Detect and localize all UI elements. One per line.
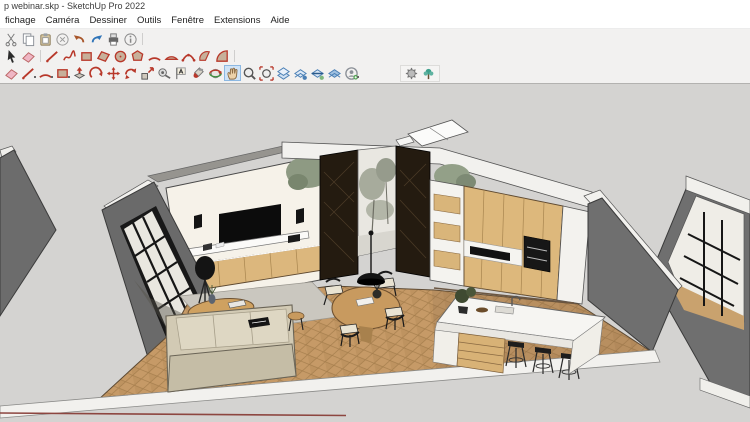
extension-a-icon: [404, 66, 419, 81]
undo-icon: [72, 32, 87, 47]
paste-tool-button[interactable]: [37, 31, 54, 47]
pan-icon: [225, 66, 240, 81]
redo-icon: [89, 32, 104, 47]
menu-item-dessiner[interactable]: Dessiner: [84, 15, 132, 26]
delete-tool-button[interactable]: [54, 31, 71, 47]
zoom-icon: [242, 66, 257, 81]
tree-mural: [358, 146, 396, 256]
toolbar-standard: [3, 31, 750, 48]
menu-item-fichage[interactable]: fichage: [0, 15, 41, 26]
dropdown-indicator[interactable]: [51, 76, 53, 78]
menu-item-camera[interactable]: Caméra: [41, 15, 85, 26]
account-icon: [344, 66, 359, 81]
print-icon: [106, 32, 121, 47]
circle-tool-button[interactable]: [112, 48, 129, 64]
3-point-arc-icon: [181, 49, 196, 64]
follow-me-icon: [89, 66, 104, 81]
rotate-icon: [123, 66, 138, 81]
polygon-tool-button[interactable]: [129, 48, 146, 64]
toolbar-main: [3, 65, 750, 82]
orbit-icon: [208, 66, 223, 81]
text-tool-button[interactable]: [173, 65, 190, 81]
rectangle-icon: [79, 49, 94, 64]
ovens: [524, 236, 550, 272]
pan-tool-button[interactable]: [224, 65, 241, 81]
scale-tool-button[interactable]: [139, 65, 156, 81]
zoom-tool-button[interactable]: [241, 65, 258, 81]
2-point-arc-icon: [164, 49, 179, 64]
toolbar-separator: [40, 50, 41, 62]
toolbar-separator: [142, 33, 143, 45]
push-pull-tool-button[interactable]: [71, 65, 88, 81]
wardrobe-left: [320, 150, 358, 280]
cut-tool-button[interactable]: [3, 31, 20, 47]
display-section-planes-tool-button[interactable]: [292, 65, 309, 81]
title-bar: p webinar.skp - SketchUp Pro 2022: [0, 0, 750, 13]
pie-filled-icon: [215, 49, 230, 64]
menu-item-fenetre[interactable]: Fenêtre: [166, 15, 209, 26]
copy-icon: [21, 32, 36, 47]
pie-filled-tool-button[interactable]: [214, 48, 231, 64]
tape-measure-icon: [157, 66, 172, 81]
sofa: [166, 305, 296, 392]
3d-viewport[interactable]: [0, 84, 750, 422]
speaker-left: [194, 214, 202, 229]
rectangle-icon: [55, 66, 70, 81]
push-pull-icon: [72, 66, 87, 81]
rotated-rectangle-icon: [96, 49, 111, 64]
display-section-planes-icon: [293, 66, 308, 81]
paint-bucket-tool-button[interactable]: [190, 65, 207, 81]
pie-icon: [198, 49, 213, 64]
section-plane-icon: [276, 66, 291, 81]
eraser-tool-button[interactable]: [3, 65, 20, 81]
menu-item-outils[interactable]: Outils: [132, 15, 166, 26]
menu-bar: fichageCaméraDessinerOutilsFenêtreExtens…: [0, 13, 750, 29]
rectangle-tool-button[interactable]: [78, 48, 95, 64]
sketchup-window: p webinar.skp - SketchUp Pro 2022 fichag…: [0, 0, 750, 422]
line-icon: [21, 66, 36, 81]
move-tool-button[interactable]: [105, 65, 122, 81]
scale-icon: [140, 66, 155, 81]
toolbar-area: [0, 29, 750, 84]
extensions-toolbar-island: [400, 65, 440, 82]
zoom-extents-tool-button[interactable]: [258, 65, 275, 81]
extension-b-tool-button[interactable]: [420, 65, 437, 81]
arc-icon: [38, 66, 53, 81]
polygon-icon: [130, 49, 145, 64]
extension-a-tool-button[interactable]: [403, 65, 420, 81]
line-icon: [45, 49, 60, 64]
orbit-tool-button[interactable]: [207, 65, 224, 81]
undo-tool-button[interactable]: [71, 31, 88, 47]
display-section-cuts-tool-button[interactable]: [309, 65, 326, 81]
eraser-tool-button[interactable]: [20, 48, 37, 64]
model-info-tool-button[interactable]: [122, 31, 139, 47]
paint-bucket-icon: [191, 66, 206, 81]
menu-item-extensions[interactable]: Extensions: [209, 15, 265, 26]
follow-me-tool-button[interactable]: [88, 65, 105, 81]
toolbar-drawing: [3, 48, 750, 65]
freehand-tool-button[interactable]: [61, 48, 78, 64]
2-point-arc-tool-button[interactable]: [163, 48, 180, 64]
zoom-extents-icon: [259, 66, 274, 81]
redo-tool-button[interactable]: [88, 31, 105, 47]
wardrobe-right: [396, 146, 430, 277]
line-tool-button[interactable]: [20, 65, 37, 81]
dining-table: [332, 287, 400, 329]
rectangle-tool-button[interactable]: [54, 65, 71, 81]
eraser-icon: [4, 66, 19, 81]
dropdown-indicator[interactable]: [357, 76, 359, 78]
paste-icon: [38, 32, 53, 47]
menu-item-aide[interactable]: Aide: [265, 15, 294, 26]
rotate-tool-button[interactable]: [122, 65, 139, 81]
print-tool-button[interactable]: [105, 31, 122, 47]
section-plane-tool-button[interactable]: [275, 65, 292, 81]
window-title: p webinar.skp - SketchUp Pro 2022: [4, 1, 145, 11]
text-icon: [174, 66, 189, 81]
dropdown-indicator[interactable]: [34, 76, 36, 78]
cut-icon: [4, 32, 19, 47]
arc-tool-button[interactable]: [146, 48, 163, 64]
toolbar-separator: [234, 50, 235, 62]
copy-tool-button[interactable]: [20, 31, 37, 47]
tape-measure-tool-button[interactable]: [156, 65, 173, 81]
extension-b-icon: [421, 66, 436, 81]
pie-tool-button[interactable]: [197, 48, 214, 64]
account-tool-button[interactable]: [343, 65, 360, 81]
circle-icon: [113, 49, 128, 64]
eraser-icon: [21, 49, 36, 64]
arc-tool-button[interactable]: [37, 65, 54, 81]
move-icon: [106, 66, 121, 81]
model-info-icon: [123, 32, 138, 47]
select-tool-button[interactable]: [3, 48, 20, 64]
arc-icon: [147, 49, 162, 64]
speaker-right: [296, 208, 304, 224]
section-fill-icon: [327, 66, 342, 81]
display-section-cuts-icon: [310, 66, 325, 81]
select-icon: [4, 49, 19, 64]
section-fill-tool-button[interactable]: [326, 65, 343, 81]
3-point-arc-tool-button[interactable]: [180, 48, 197, 64]
delete-icon: [55, 32, 70, 47]
rotated-rectangle-tool-button[interactable]: [95, 48, 112, 64]
viewport-container: [0, 84, 750, 422]
line-tool-button[interactable]: [44, 48, 61, 64]
dropdown-indicator[interactable]: [68, 76, 70, 78]
freehand-icon: [62, 49, 77, 64]
